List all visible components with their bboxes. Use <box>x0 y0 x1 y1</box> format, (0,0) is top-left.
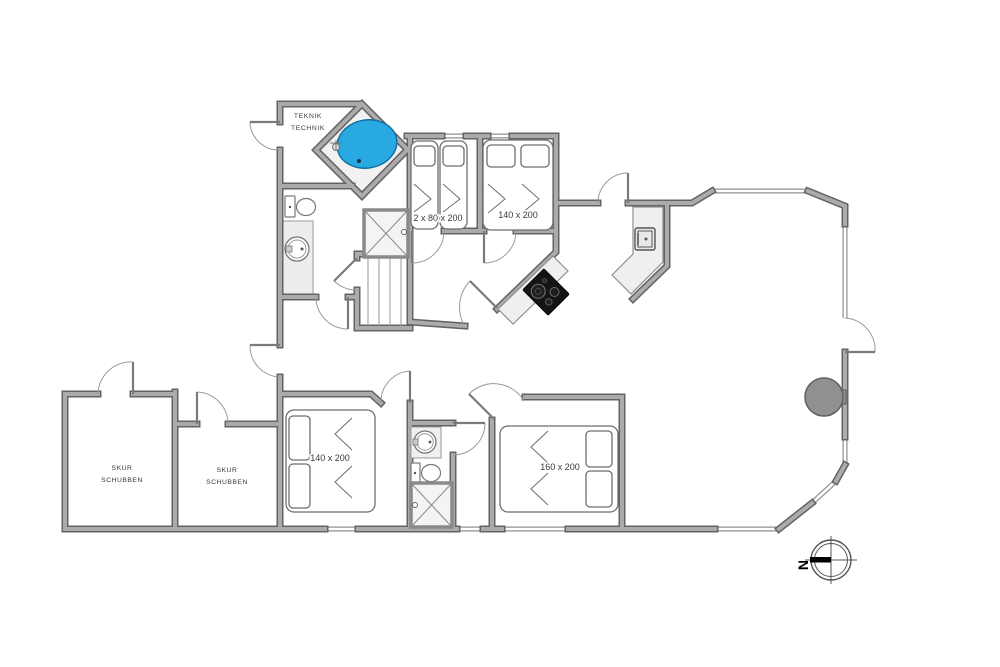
washbasin-icon <box>285 237 309 261</box>
toilet2-icon <box>411 463 441 483</box>
floor-plan: N TEKNIK TECHNIK 2 x 80 x 200 140 x 200 … <box>0 0 1000 667</box>
toilet-icon <box>285 196 316 217</box>
shower2-cabin-icon <box>411 483 452 527</box>
shed1-label-line1: SKUR <box>112 465 133 472</box>
shed2-label-line2: SCHUBBEN <box>206 479 248 486</box>
wardrobe-icon <box>368 258 401 326</box>
washbasin2-icon <box>411 427 441 458</box>
spa-drain <box>357 159 361 163</box>
compass-needle <box>810 557 831 563</box>
compass-north-label: N <box>795 560 811 570</box>
bed-twin-size-label: 2 x 80 x 200 <box>413 213 462 223</box>
bed-top-size-label: 140 x 200 <box>498 210 538 220</box>
wood-stove-icon <box>805 378 846 416</box>
compass-rose: N <box>795 536 857 584</box>
bed-bottom-right-size-label: 160 x 200 <box>540 462 580 472</box>
teknik-label-line2: TECHNIK <box>291 125 325 132</box>
teknik-label-line1: TEKNIK <box>294 113 322 120</box>
oven-icon <box>635 228 655 250</box>
shed1-label-line2: SCHUBBEN <box>101 477 143 484</box>
shower-cabin-icon <box>364 210 408 257</box>
shed2-label-line1: SKUR <box>217 467 238 474</box>
bed-bottom-left-size-label: 140 x 200 <box>310 453 350 463</box>
floor-plan-page: N TEKNIK TECHNIK 2 x 80 x 200 140 x 200 … <box>0 0 1000 667</box>
